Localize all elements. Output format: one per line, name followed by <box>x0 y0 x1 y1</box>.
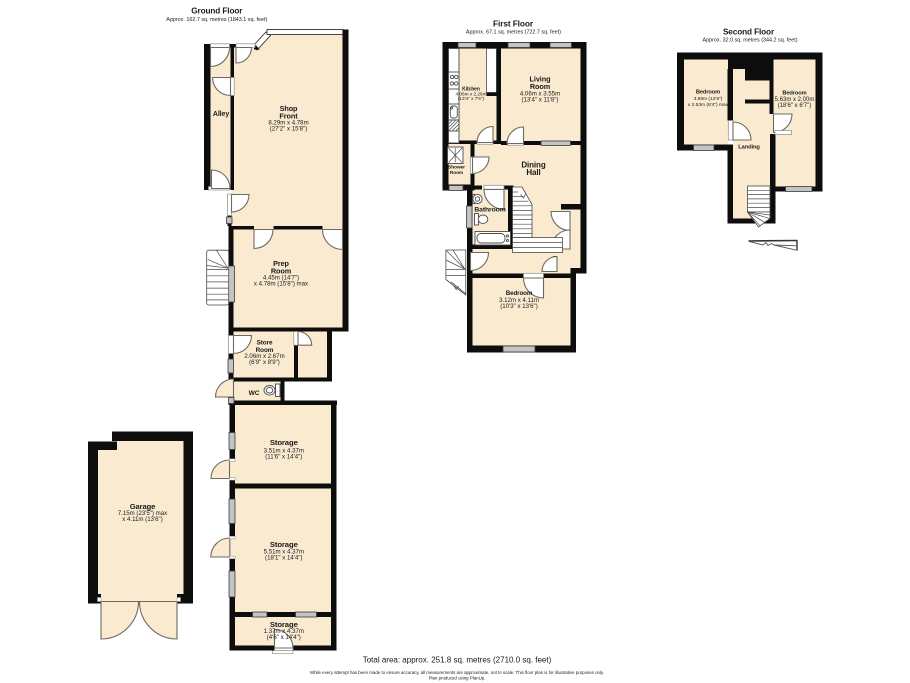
svg-text:(13'4" x 11'8"): (13'4" x 11'8") <box>521 97 558 104</box>
svg-text:(13'4" x 7'6"): (13'4" x 7'6") <box>458 96 485 101</box>
svg-text:Approx. 67.1 sq. metres (722.7: Approx. 67.1 sq. metres (722.7 sq. feet) <box>466 30 561 36</box>
svg-text:x 2.53m (8'4") max: x 2.53m (8'4") max <box>688 102 729 108</box>
svg-text:(11'6" x 14'4"): (11'6" x 14'4") <box>265 453 302 460</box>
svg-text:Store: Store <box>257 340 273 347</box>
svg-text:Shower: Shower <box>448 165 465 171</box>
svg-text:Alley: Alley <box>213 111 229 118</box>
svg-text:(4'6" x 14'4"): (4'6" x 14'4") <box>267 634 301 641</box>
svg-text:(10'3" x 13'6"): (10'3" x 13'6") <box>500 303 537 310</box>
svg-text:Landing: Landing <box>738 144 760 150</box>
svg-text:Ground Floor: Ground Floor <box>191 7 243 16</box>
svg-text:Plan produced using PlanUp.: Plan produced using PlanUp. <box>429 675 486 680</box>
svg-text:Storage: Storage <box>270 438 299 447</box>
svg-text:5.63m x 2.00m: 5.63m x 2.00m <box>775 97 815 103</box>
svg-text:WC: WC <box>249 390 260 397</box>
svg-text:(27'2" x 15'8"): (27'2" x 15'8") <box>270 126 307 133</box>
svg-text:Bedroom: Bedroom <box>782 91 806 97</box>
svg-text:x 4.78m (15'8") max: x 4.78m (15'8") max <box>254 281 308 288</box>
svg-text:(6'9" x 8'9"): (6'9" x 8'9") <box>249 359 280 366</box>
svg-text:(18'1" x 14'4"): (18'1" x 14'4") <box>265 554 302 561</box>
svg-text:Room: Room <box>450 170 463 176</box>
svg-text:Second Floor: Second Floor <box>723 27 775 36</box>
svg-text:Hall: Hall <box>526 168 540 177</box>
svg-text:First Floor: First Floor <box>493 19 534 29</box>
svg-text:x 4.11m (13'6"): x 4.11m (13'6") <box>122 516 162 523</box>
svg-text:Bedroom: Bedroom <box>696 90 720 96</box>
svg-text:Total area: approx. 251.8 sq.: Total area: approx. 251.8 sq. metres (27… <box>363 656 552 665</box>
svg-text:Approx. 32.0 sq. metres (344.2: Approx. 32.0 sq. metres (344.2 sq. feet) <box>703 38 798 44</box>
svg-text:Bathroom: Bathroom <box>474 207 505 214</box>
svg-text:While every attempt has been m: While every attempt has been made to ens… <box>310 670 604 675</box>
svg-text:(18'6" x 6'7"): (18'6" x 6'7") <box>778 103 812 109</box>
svg-text:3.89m (12'9"): 3.89m (12'9") <box>694 96 723 102</box>
svg-text:Approx. 162.7 sq. metres (1843: Approx. 162.7 sq. metres (1843.1 sq. fee… <box>166 17 267 23</box>
